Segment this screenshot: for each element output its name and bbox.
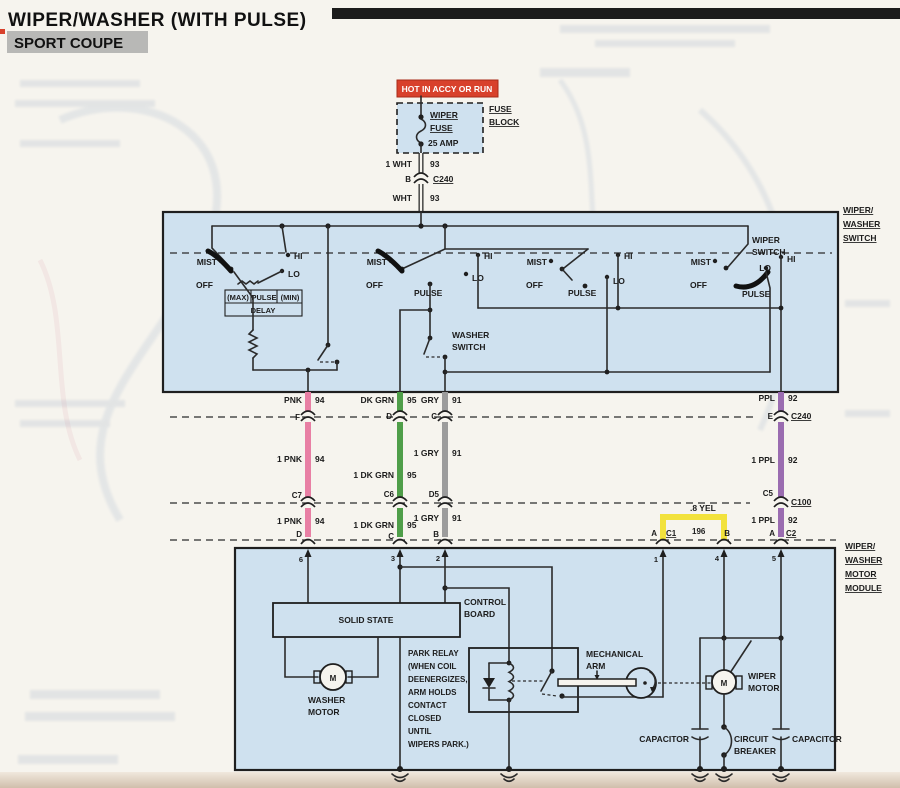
label-8yel: .8 YEL [690,503,716,513]
header-black-bar [332,8,900,19]
pin-a-c2: A [769,529,775,538]
page-edge-red-tick [0,29,5,34]
module-side-label-2: WASHER [845,555,882,565]
label-1pnk-low: 1 PNK [277,516,303,526]
washer-motor-m: M [330,674,337,683]
fuse-block-label-1: FUSE [489,104,512,114]
control-board-label-2: BOARD [464,609,495,619]
fuse-amp-label: 25 AMP [428,138,459,148]
label-lo-4: LO [759,263,771,273]
label-1grn-low: 1 DK GRN [353,520,394,530]
label-mist-4: MIST [691,257,712,267]
label-ppl-num: 92 [788,393,798,403]
label-mist-3: MIST [527,257,548,267]
circuit-breaker-label-2: BREAKER [734,746,776,756]
label-delay: DELAY [251,306,276,315]
label-1pnk-mid: 1 PNK [277,454,303,464]
module-side-label-1: WIPER/ [845,541,876,551]
wiring-diagram: WIPER/WASHER (WITH PULSE) SPORT COUPE HO… [0,0,900,788]
connector-c240-label: C240 [433,174,454,184]
pin-5: 5 [772,554,776,563]
pin-c-c240: C [431,412,437,421]
page-subtitle: SPORT COUPE [14,35,123,52]
wiper-fuse-label-2: FUSE [430,123,453,133]
label-mist-2: MIST [367,257,388,267]
label-wht-2-num: 93 [430,193,440,203]
label-196: 196 [692,527,706,536]
pin-3: 3 [391,554,395,563]
connector-c100-label: C100 [791,497,812,507]
capacitor-right-label: CAPACITOR [792,734,842,744]
hot-in-accy-label: HOT IN ACCY OR RUN [402,84,493,94]
control-board-label-1: CONTROL [464,597,506,607]
label-wht-1: 1 WHT [386,159,413,169]
label-max: (MAX) [227,293,249,302]
park-relay-note-line: (WHEN COIL [408,662,457,671]
label-hi-1: HI [294,251,303,261]
label-hi-2: HI [484,251,493,261]
pin-2: 2 [436,554,440,563]
capacitor-left-label: CAPACITOR [639,734,689,744]
pin-c7: C7 [292,491,303,500]
label-off-3: OFF [526,280,543,290]
label-mist-1: MIST [197,257,218,267]
park-relay-note-line: WIPERS PARK.) [408,740,469,749]
label-1gry-mid-num: 91 [452,448,462,458]
label-pnk: PNK [284,395,303,405]
label-pulse-4: PULSE [742,289,771,299]
switch-side-label-3: SWITCH [843,233,877,243]
label-pnk-num: 94 [315,395,325,405]
label-1ppl-mid: 1 PPL [751,455,775,465]
wiper-switch-label-1: WIPER [752,235,780,245]
label-1ppl-low: 1 PPL [751,515,775,525]
label-min: (MIN) [281,293,300,302]
park-relay-note-line: PARK RELAY [408,649,459,658]
label-1gry-mid: 1 GRY [414,448,440,458]
wiper-motor-m: M [721,679,728,688]
pin-c-module: C [388,532,394,541]
connector-c1-label: C1 [666,529,677,538]
label-grn-num: 95 [407,395,417,405]
label-1gry-low-num: 91 [452,513,462,523]
page-bottom-edge [0,772,900,788]
label-pulse-2: PULSE [414,288,443,298]
label-lo-1: LO [288,269,300,279]
label-hi-4: HI [787,254,796,264]
washer-motor-label-2: MOTOR [308,707,339,717]
label-wht-2: WHT [393,193,413,203]
wiper-fuse-label-1: WIPER [430,110,458,120]
pin-d-c240: D [386,412,392,421]
label-gry: GRY [421,395,439,405]
washer-switch-label-2: SWITCH [452,342,486,352]
label-1ppl-low-num: 92 [788,515,798,525]
label-1grn-mid: 1 DK GRN [353,470,394,480]
connector-c240-pin: B [405,175,411,184]
washer-motor-label-1: WASHER [308,695,345,705]
pin-d5: D5 [429,490,440,499]
park-relay-note-line: DEENERGIZES, [408,675,468,684]
label-pulse-3: PULSE [568,288,597,298]
wiper-washer-switch-box: WIPER/ WASHER SWITCH MIST OFF HI LO [163,205,880,392]
pin-1: 1 [654,555,658,564]
pin-a-c1: A [651,529,657,538]
module-side-label-3: MOTOR [845,569,876,579]
connector-c240-label-2: C240 [791,411,812,421]
wiper-motor-label-1: WIPER [748,671,776,681]
park-relay-note-line: CLOSED [408,714,442,723]
pin-c5: C5 [763,489,774,498]
label-off-2: OFF [366,280,383,290]
pin-d-module: D [296,530,302,539]
pin-b-module: B [433,530,439,539]
switch-side-label-1: WIPER/ [843,205,874,215]
label-off-4: OFF [690,280,707,290]
label-grn: DK GRN [360,395,394,405]
mechanical-arm-label-2: ARM [586,661,605,671]
park-relay-note-line: CONTACT [408,701,447,710]
page-title: WIPER/WASHER (WITH PULSE) [8,10,307,31]
washer-switch-label-1: WASHER [452,330,489,340]
scanned-wiring-diagram-page: WIPER/WASHER (WITH PULSE) SPORT COUPE HO… [0,0,900,788]
mechanical-arm-label-1: MECHANICAL [586,649,643,659]
label-pulse-delay: PULSE [251,293,276,302]
label-1pnk-low-num: 94 [315,516,325,526]
wiper-motor-label-2: MOTOR [748,683,779,693]
label-off-1: OFF [196,280,213,290]
label-1ppl-mid-num: 92 [788,455,798,465]
hot-in-accy-banner: HOT IN ACCY OR RUN [397,80,498,97]
connector-c2-label: C2 [786,529,797,538]
solid-state-label: SOLID STATE [339,615,394,625]
park-relay-note-line: UNTIL [408,727,432,736]
label-gry-num: 91 [452,395,462,405]
pin-b-c1: B [724,529,730,538]
circuit-breaker-label-1: CIRCUIT [734,734,769,744]
pin-f: F [295,413,300,422]
switch-side-label-2: WASHER [843,219,880,229]
pin-e-c240: E [768,412,774,421]
label-lo-3: LO [613,276,625,286]
label-wht-1-num: 93 [430,159,440,169]
module-side-label-4: MODULE [845,583,882,593]
fuse-block-label-2: BLOCK [489,117,520,127]
pin-c6: C6 [384,490,395,499]
label-1gry-low: 1 GRY [414,513,440,523]
pin-6: 6 [299,555,303,564]
label-1grn-mid-num: 95 [407,470,417,480]
label-ppl: PPL [758,393,775,403]
wiper-washer-motor-module: WIPER/ WASHER MOTOR MODULE 6 3 2 1 4 5 S… [235,541,882,781]
park-relay-note-line: ARM HOLDS [408,688,457,697]
label-hi-3: HI [624,251,633,261]
label-1pnk-mid-num: 94 [315,454,325,464]
